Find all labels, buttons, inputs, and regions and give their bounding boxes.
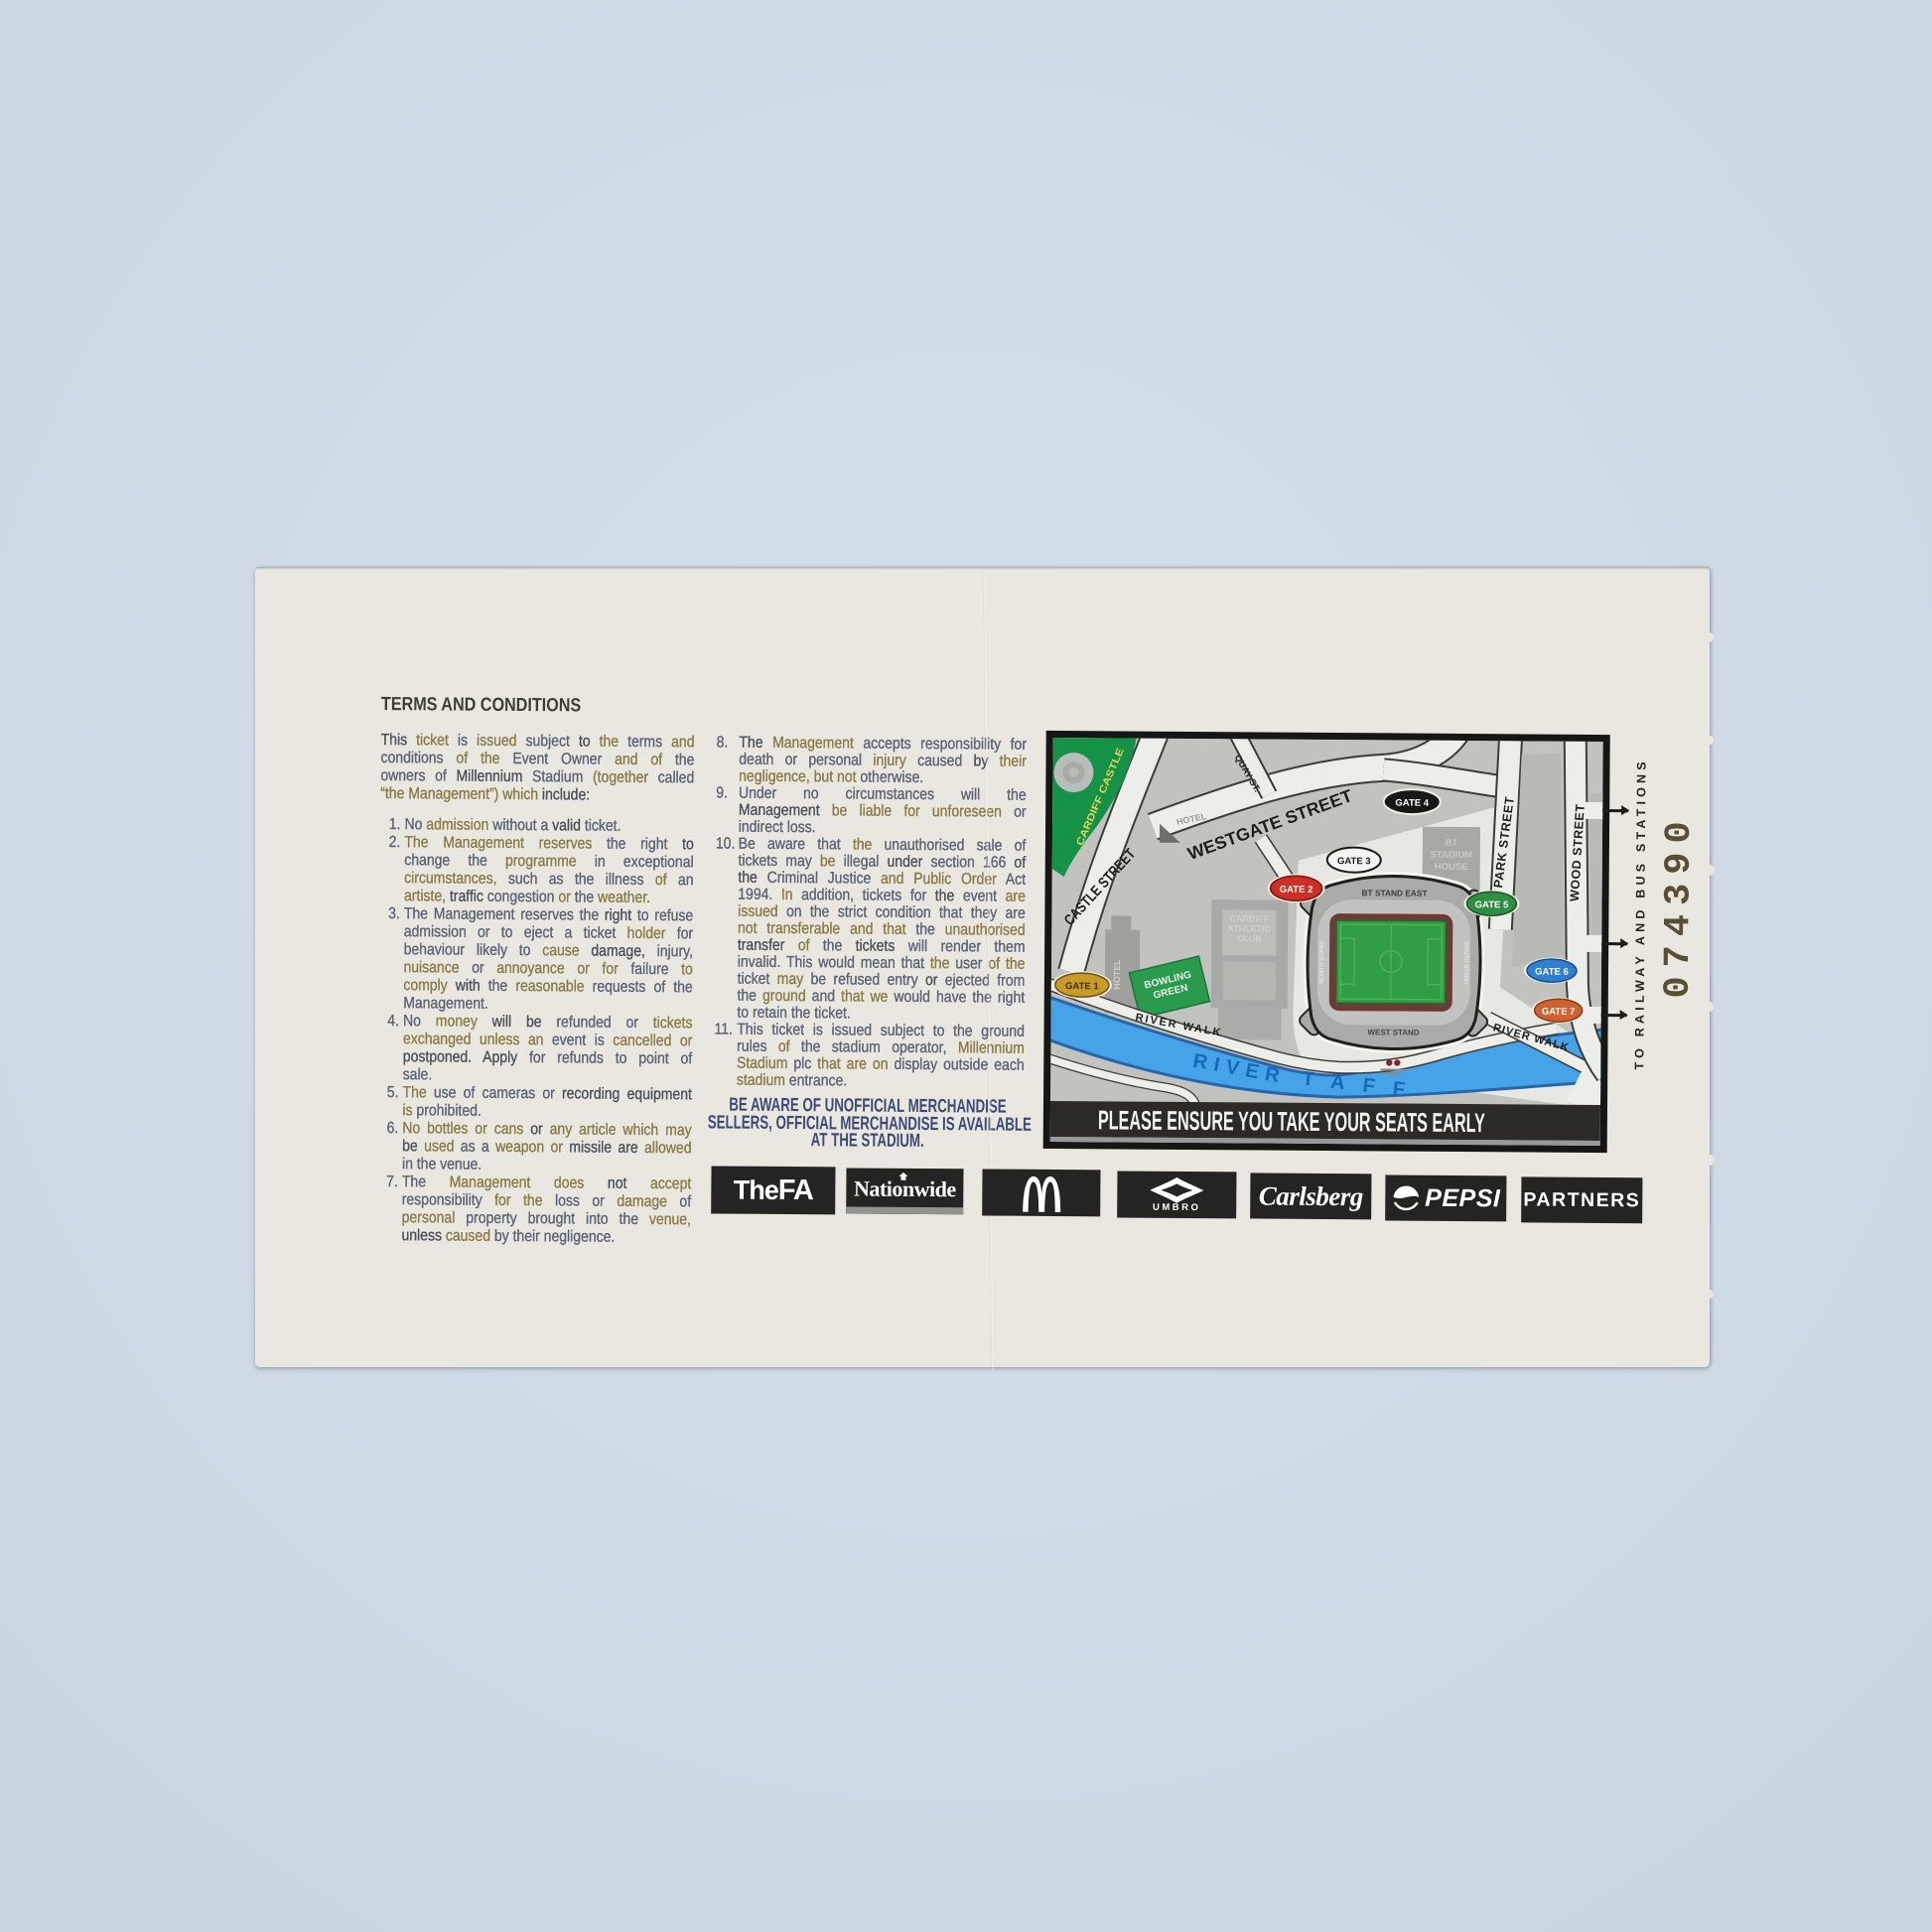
svg-text:PLEASE ENSURE YOU TAKE YOUR SE: PLEASE ENSURE YOU TAKE YOUR SEATS EARLY [1098,1105,1485,1138]
svg-text:CLUB: CLUB [1237,933,1263,943]
svg-text:BT: BT [1446,838,1458,849]
svg-text:GATE 7: GATE 7 [1542,1007,1576,1018]
svg-text:CARDIFF: CARDIFF [1230,913,1270,923]
svg-text:STADIUM: STADIUM [1431,850,1473,861]
svg-text:GATE 6: GATE 6 [1535,967,1569,978]
svg-text:HOTEL: HOTEL [1112,959,1122,990]
svg-text:ATHLETIC: ATHLETIC [1227,923,1271,933]
svg-text:GATE 2: GATE 2 [1280,885,1313,896]
svg-text:NORTH STAND: NORTH STAND [1319,940,1325,984]
svg-text:GATE 3: GATE 3 [1337,856,1371,867]
svg-text:HOUSE: HOUSE [1435,862,1468,873]
svg-text:WEST STAND: WEST STAND [1368,1028,1420,1036]
svg-text:BT STAND EAST: BT STAND EAST [1362,888,1429,897]
svg-text:SOUTH STAND: SOUTH STAND [1462,942,1468,986]
svg-text:GATE 4: GATE 4 [1395,797,1429,808]
svg-text:GATE 5: GATE 5 [1475,899,1509,910]
svg-text:GATE 1: GATE 1 [1065,981,1099,992]
